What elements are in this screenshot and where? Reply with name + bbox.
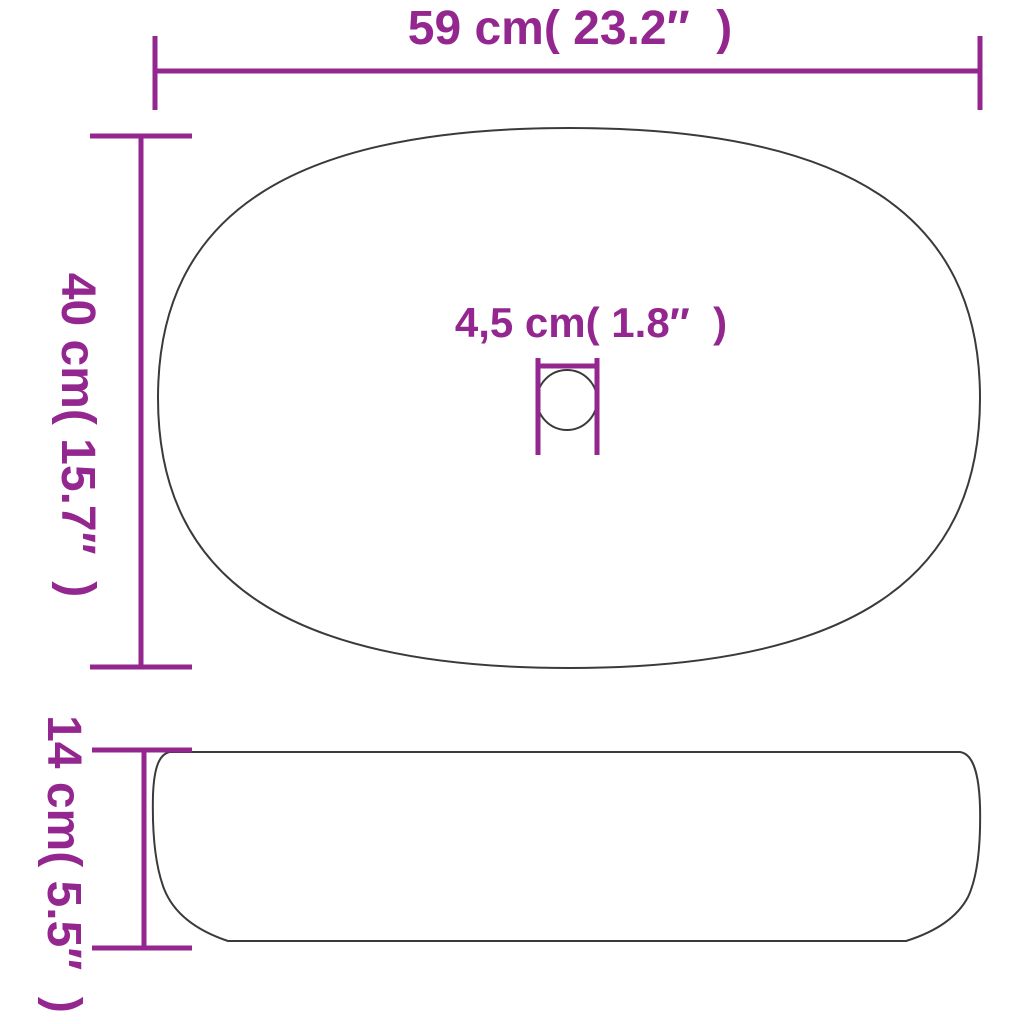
depth-dimension-label: 40 cm( 15.7″ ) [52,265,104,605]
top-view-outline [158,128,980,668]
drain-dimension-bracket [536,358,599,455]
height-dimension-line [92,750,192,948]
diagram-drawing [0,0,1024,1024]
drain-circle [537,370,597,430]
dimension-diagram: 59 cm( 23.2″ ) 40 cm( 15.7″ ) 4,5 cm( 1.… [0,0,1024,1024]
width-dimension-label: 59 cm( 23.2″ ) [400,0,740,56]
side-view-outline [153,752,980,941]
height-dimension-label: 14 cm( 5.5″ ) [38,714,90,1014]
drain-dimension-label: 4,5 cm( 1.8″ ) [451,300,731,346]
